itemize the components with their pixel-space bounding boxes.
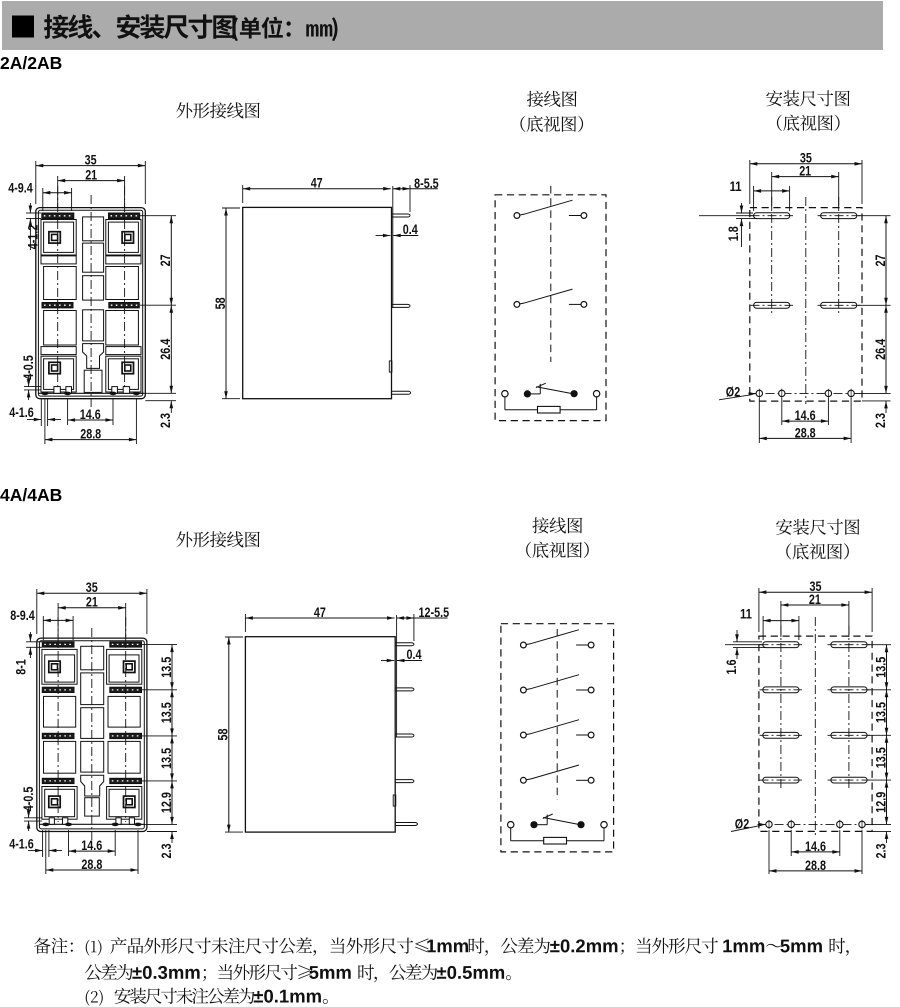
svg-text:4-1.2: 4-1.2 (26, 225, 41, 250)
svg-text:35: 35 (86, 580, 98, 595)
svg-text:0.4: 0.4 (403, 222, 418, 237)
svg-text:27: 27 (873, 255, 888, 267)
svg-text:47: 47 (314, 605, 326, 620)
svg-text:47: 47 (311, 176, 323, 191)
svg-text:13.5: 13.5 (159, 702, 174, 723)
svg-text:4-1.6: 4-1.6 (9, 405, 34, 420)
svg-text:14.6: 14.6 (805, 839, 826, 854)
svg-text:27: 27 (158, 254, 173, 266)
svg-text:8-5.5: 8-5.5 (414, 176, 439, 191)
svg-text:35: 35 (85, 153, 97, 168)
svg-text:14.6: 14.6 (80, 407, 101, 422)
svg-text:58: 58 (216, 728, 231, 740)
svg-text:12-5.5: 12-5.5 (419, 605, 450, 620)
svg-text:2.3: 2.3 (873, 843, 888, 858)
svg-text:8-9.4: 8-9.4 (10, 608, 35, 623)
svg-text:28.8: 28.8 (805, 858, 826, 873)
svg-text:4-0.5: 4-0.5 (21, 786, 36, 811)
svg-text:8-1: 8-1 (14, 659, 29, 675)
svg-text:13.5: 13.5 (159, 748, 174, 769)
svg-text:1.8: 1.8 (726, 226, 741, 241)
svg-text:26.4: 26.4 (158, 338, 173, 359)
svg-text:12.9: 12.9 (873, 792, 888, 813)
svg-text:28.8: 28.8 (80, 427, 101, 442)
svg-text:11: 11 (740, 606, 752, 621)
svg-text:26.4: 26.4 (873, 339, 888, 360)
svg-text:21: 21 (809, 592, 821, 607)
svg-text:28.8: 28.8 (81, 857, 102, 872)
svg-text:0.4: 0.4 (407, 647, 422, 662)
svg-text:21: 21 (85, 168, 97, 183)
svg-text:4-0.5: 4-0.5 (21, 355, 36, 380)
svg-text:28.8: 28.8 (795, 425, 816, 440)
svg-text:2.3: 2.3 (158, 413, 173, 428)
svg-text:21: 21 (799, 164, 811, 179)
svg-text:11: 11 (730, 179, 742, 194)
svg-text:13.5: 13.5 (159, 656, 174, 677)
svg-text:1.6: 1.6 (724, 659, 739, 674)
svg-text:2.3: 2.3 (159, 843, 174, 858)
svg-text:14.6: 14.6 (795, 408, 816, 423)
svg-text:58: 58 (213, 297, 228, 309)
svg-text:2.3: 2.3 (873, 413, 888, 428)
svg-text:4-9.4: 4-9.4 (8, 180, 33, 195)
svg-text:13.5: 13.5 (873, 656, 888, 677)
svg-text:12.9: 12.9 (159, 792, 174, 813)
svg-text:4A/4AB: 4A/4AB (0, 485, 62, 505)
svg-text:13.5: 13.5 (873, 747, 888, 768)
svg-text:2A/2AB: 2A/2AB (0, 53, 62, 73)
svg-text:14.6: 14.6 (81, 838, 102, 853)
svg-text:4-1.6: 4-1.6 (9, 836, 34, 851)
svg-text:13.5: 13.5 (873, 702, 888, 723)
svg-text:21: 21 (86, 595, 98, 610)
